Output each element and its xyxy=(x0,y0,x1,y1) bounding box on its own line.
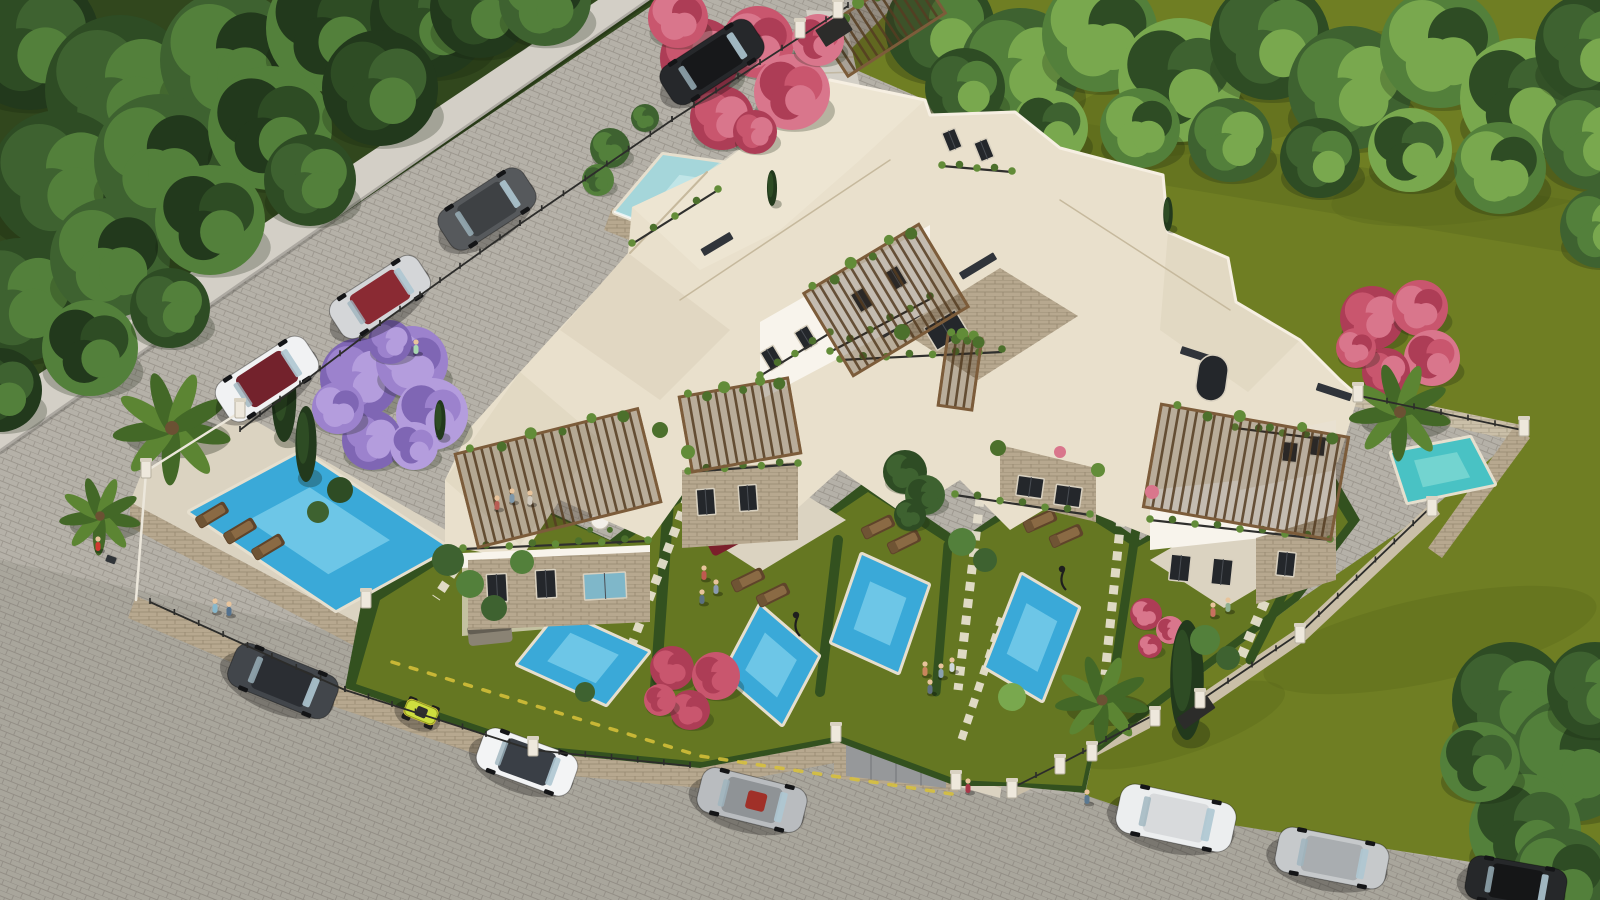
fences-pillar xyxy=(1149,706,1161,726)
building-circle xyxy=(1145,485,1159,499)
vegetation-circle xyxy=(998,683,1026,711)
fences-pillar xyxy=(360,588,372,608)
building-circle xyxy=(990,440,1006,456)
building-window xyxy=(1169,554,1192,582)
fences-pillar xyxy=(832,0,844,18)
fences-pillar xyxy=(1006,778,1018,798)
fences-pillar xyxy=(830,722,842,742)
building-window xyxy=(535,569,556,598)
building-circle xyxy=(1054,446,1066,458)
fences-pillar xyxy=(234,398,246,418)
building-window xyxy=(1211,558,1234,586)
vegetation-circle xyxy=(456,570,484,598)
building-circle xyxy=(652,422,668,438)
aerial-render-villa-complex xyxy=(0,0,1600,900)
fences-pillar xyxy=(1194,688,1206,708)
vegetation-circle xyxy=(432,544,464,576)
fences-pillar xyxy=(1426,496,1438,516)
building-window xyxy=(583,572,626,600)
building-window xyxy=(1016,475,1045,498)
building-window xyxy=(696,488,716,515)
building-circle xyxy=(894,324,910,340)
fences-pillar xyxy=(1054,754,1066,774)
fences-pillar xyxy=(1518,416,1530,436)
building-window xyxy=(1276,551,1296,577)
vegetation-circle xyxy=(1216,646,1240,670)
fences-pillar xyxy=(140,458,152,478)
fences-pillar xyxy=(794,18,806,38)
fences-pillar xyxy=(1352,382,1364,402)
vegetation-circle xyxy=(973,548,997,572)
vegetation-circle xyxy=(327,477,353,503)
fences-pillar xyxy=(950,770,962,790)
vegetation-circle xyxy=(948,528,976,556)
fences-pillar xyxy=(1086,741,1098,761)
vegetation-circle xyxy=(481,595,507,621)
building-window xyxy=(738,484,758,511)
building-circle xyxy=(681,445,695,459)
fences-pillar xyxy=(527,736,539,756)
scene-canvas xyxy=(0,0,1600,900)
building-window xyxy=(1054,484,1083,507)
vegetation-circle xyxy=(1190,625,1220,655)
building-circle xyxy=(1091,463,1105,477)
vegetation-circle xyxy=(307,501,329,523)
vegetation-circle xyxy=(575,682,595,702)
vegetation-circle xyxy=(510,550,534,574)
fences-pillar xyxy=(1294,623,1306,643)
